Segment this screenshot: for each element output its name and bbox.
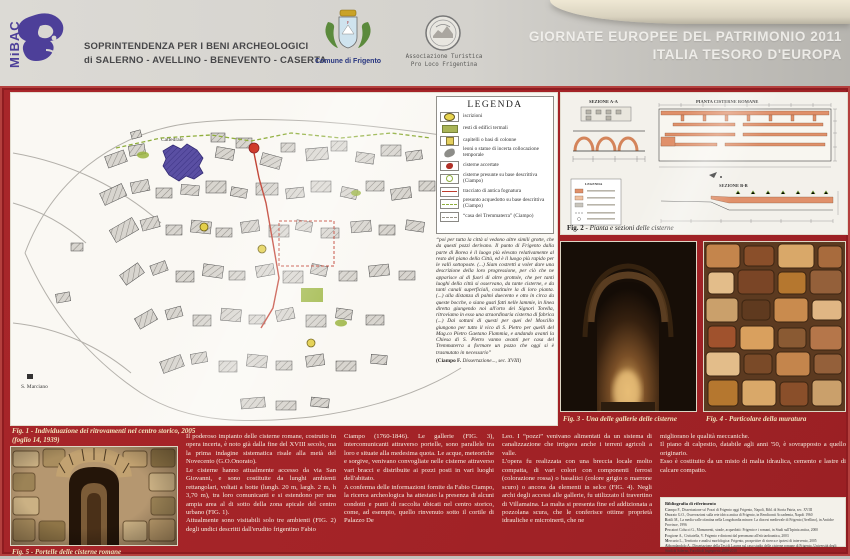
quote-attribution: (Ciampo F. Dissertazione..., sec. XVIII) [436, 358, 554, 364]
legend-item: capitelli o basi di colonne [440, 136, 550, 146]
bibliography-entry: Pescatori Colucci G., Monumenti, strade,… [665, 528, 841, 533]
fig4-caption: Fig. 4 - Particolare della muratura [706, 415, 806, 424]
legend-item: iscrizioni [440, 112, 550, 122]
map-legend: LEGENDA iscrizioni resti di edifici term… [436, 96, 554, 234]
event-line1: GIORNATE EUROPEE DEL PATRIMONIO 2011 [529, 28, 842, 46]
fig3-caption: Fig. 3 - Una delle gallerie delle cister… [563, 415, 677, 424]
legend-item: “casa del Tremmaterra” (Ciampo) [440, 212, 550, 222]
ciampo-quote: “poi per tutta la città si vedono altre … [436, 237, 554, 364]
red-line-icon [440, 187, 459, 197]
fig2-plan [659, 103, 837, 167]
cistern-red-icon [440, 161, 459, 171]
inscription-oval-icon [440, 112, 459, 122]
fig2-label-sezione-aa: SEZIONE A-A [589, 99, 619, 104]
body-column-3: Leo. I “pozzi” venivano alimentati da un… [502, 433, 652, 526]
proloco-line2: Pro Loco Frigentina [396, 62, 492, 70]
fig3-photo [560, 241, 697, 412]
photo-corner-artifact [550, 0, 850, 24]
fig4-photo [703, 241, 846, 412]
sewer-route [254, 153, 279, 328]
green-dashed-line-icon [440, 199, 459, 209]
fig5-caption: Fig. 5 - Portelle delle cisterne romane [12, 548, 121, 557]
legend-title: LEGENDA [440, 100, 550, 110]
bibliography-entry: Rotili M., La media valle ofantina nella… [665, 518, 841, 528]
legend-item: cisterne presunte su base descrittiva (C… [440, 173, 550, 185]
fig2-section-bb [661, 191, 838, 223]
s-marciano-mark [27, 374, 33, 379]
north-arrow-icon [709, 172, 722, 178]
fig2-section-aa [573, 131, 645, 162]
mibac-logo-icon: MiBAC [10, 8, 78, 74]
capital-square-icon [440, 136, 459, 146]
legend-item: resti di edifici termali [440, 124, 550, 134]
fig1-caption: Fig. 1 - Individuazione dei ritrovamenti… [12, 427, 195, 445]
fig2-drawing: SEZIONE A-A [561, 93, 845, 232]
legend-item: tracciato di antica fognatura [440, 187, 550, 197]
fig2-legend: LEGENDA [571, 179, 621, 225]
legend-item: cisterne accertate [440, 161, 550, 171]
soprintendenza-title: SOPRINTENDENZA PER I BENI ARCHEOLOGICI d… [84, 40, 327, 68]
body-column-2: Ciampo (1760-1846). Le gallerie (FIG. 3)… [344, 433, 494, 526]
fig2-panel: SEZIONE A-A [560, 92, 848, 235]
map-label-s-marciano: S. Marciano [21, 384, 48, 390]
proloco-seal-icon [424, 14, 462, 52]
comune-crest-icon: F [322, 8, 374, 56]
map-label-cattedrale: Cattedrale [161, 137, 184, 143]
bibliography-title: Bibliografia di riferimento [665, 501, 841, 506]
fig2-caption: Fig. 2 - Pianta e sezioni delle cisterne [567, 224, 674, 232]
thermal-rect-icon [440, 124, 459, 134]
body-column-1: Il poderoso impianto delle cisterne roma… [186, 433, 336, 534]
proloco-line1: Associazione Turistica [396, 54, 492, 62]
fig5-photo [10, 446, 178, 546]
map-buildings [55, 130, 435, 410]
bibliography-box: Bibliografia di riferimento Ciampo F., D… [660, 497, 846, 547]
cathedral-shape [163, 144, 203, 181]
gray-dashed-line-icon [440, 212, 459, 222]
event-title: GIORNATE EUROPEE DEL PATRIMONIO 2011 ITA… [529, 28, 842, 63]
soprintendenza-line1: SOPRINTENDENZA PER I BENI ARCHEOLOGICI [84, 40, 327, 54]
soprintendenza-line2: di SALERNO - AVELLINO - BENEVENTO - CASE… [84, 54, 327, 68]
legend-item: presunto acquedotto su base descrittiva … [440, 198, 550, 210]
red-board: Cattedrale [0, 86, 850, 556]
statue-blob-icon [440, 148, 459, 158]
green-circle-outline-icon [440, 174, 459, 184]
fig2-label-pianta: PIANTA CISTERNE ROMANE [696, 99, 758, 104]
comune-label: Comune di Frigento [296, 58, 400, 65]
fig2-label-sezione-bb: SEZIONE B-B [719, 183, 748, 188]
event-line2: ITALIA TESORO D'EUROPA [529, 46, 842, 64]
poster-photo: MiBAC SOPRINTENDENZA PER I BENI ARCHEOLO… [0, 0, 850, 559]
quote-text: “poi per tutta la città si vedono altre … [436, 237, 554, 356]
fig2-legenda-title: LEGENDA [585, 182, 603, 186]
map-panel: Cattedrale [10, 92, 558, 426]
proloco-label: Associazione Turistica Pro Loco Frigenti… [396, 54, 492, 70]
cistern-red-dot [249, 143, 259, 153]
bibliography-entry: Abbondandolo A., Dissertazione della Tes… [665, 544, 841, 554]
inscription-dots [200, 223, 315, 347]
legend-item: leoni o statue di incerta collocazione t… [440, 147, 550, 159]
body-column-4: migliorano le qualità meccaniche. Il pia… [660, 433, 846, 475]
thermal-remains [137, 152, 361, 327]
fig2-elevation [581, 107, 631, 121]
header-strip: MiBAC SOPRINTENDENZA PER I BENI ARCHEOLO… [0, 0, 850, 86]
